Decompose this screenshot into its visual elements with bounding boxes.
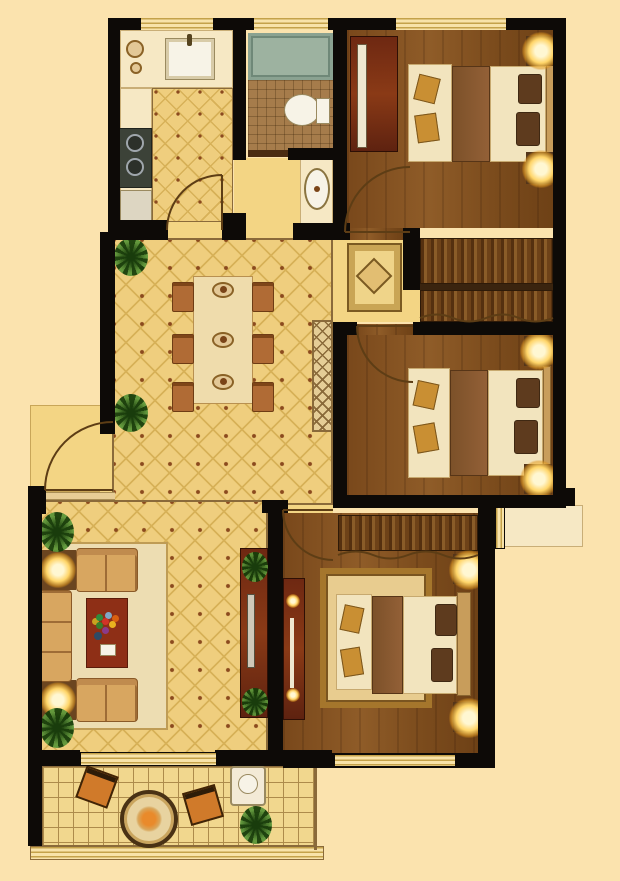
toilet-bowl bbox=[284, 94, 320, 126]
wall-niche-bottom bbox=[293, 223, 350, 240]
entry-threshold-step bbox=[45, 492, 115, 500]
kitchen-base-cabinet bbox=[120, 190, 152, 221]
coffee-table-tray bbox=[100, 644, 116, 656]
wall-living-bottom-left bbox=[28, 750, 80, 766]
balcony-right-edge bbox=[314, 766, 317, 850]
bathtub bbox=[248, 33, 333, 80]
toilet-tank bbox=[316, 98, 330, 124]
bedroom1-bed-blanket bbox=[452, 66, 490, 162]
master-south-window bbox=[335, 755, 455, 766]
master-dresser-knob-2 bbox=[286, 688, 300, 702]
dining-chair-right-2 bbox=[252, 334, 274, 364]
bedroom2-bed-blanket bbox=[450, 370, 488, 476]
dining-plant-top bbox=[114, 238, 148, 276]
living-lamp-top bbox=[40, 552, 76, 588]
flower-bouquet bbox=[102, 618, 109, 625]
wall-living-master-divider bbox=[268, 505, 283, 763]
wall-kitchen-bottom-left bbox=[108, 220, 168, 240]
wall-closet-left-chunk bbox=[403, 228, 420, 290]
balcony-utility-basin bbox=[238, 774, 258, 794]
balcony-sliding-door bbox=[80, 752, 217, 766]
wall-living-bottom-right bbox=[215, 750, 332, 766]
basin-drain bbox=[314, 186, 320, 192]
bedroom2-door-threshold bbox=[357, 324, 413, 335]
master-dresser-knob-1 bbox=[286, 594, 300, 608]
wall-dining-bedroom2-divider bbox=[333, 322, 347, 508]
stove-burner-top bbox=[126, 134, 144, 152]
bedroom1-door-threshold bbox=[347, 228, 403, 240]
bedroom1-wardrobe-slat bbox=[357, 44, 367, 148]
wall-left-outer bbox=[28, 500, 42, 846]
master-pillow-2 bbox=[431, 648, 453, 682]
bedroom2-bench-clothes-2 bbox=[413, 422, 440, 453]
master-wardrobe-strip bbox=[338, 515, 478, 551]
closet-strip-bedroom1 bbox=[420, 238, 553, 284]
master-east-window bbox=[495, 505, 505, 549]
hallway-display-cabinet bbox=[312, 320, 333, 432]
coffee-table-item bbox=[94, 632, 102, 640]
master-bench-clothes-2 bbox=[340, 647, 364, 678]
master-east-window-sill bbox=[495, 505, 583, 547]
tv bbox=[247, 594, 255, 668]
bedroom1-pillow-2 bbox=[516, 112, 540, 146]
wall-master-right bbox=[478, 508, 495, 768]
kitchen-window bbox=[140, 18, 214, 30]
living-plant-top bbox=[40, 512, 74, 552]
bathroom-window bbox=[253, 18, 329, 30]
balcony-table-flower bbox=[136, 806, 162, 832]
stove-burner-bottom bbox=[126, 158, 144, 176]
wall-bath-bottom-chunk bbox=[288, 148, 333, 160]
wall-bedroom2-bottom bbox=[333, 495, 566, 508]
dining-chair-left-3 bbox=[172, 382, 194, 412]
loveseat-top bbox=[76, 548, 138, 592]
wall-kitchen-bottom-right bbox=[222, 213, 246, 240]
wall-kitchen-left bbox=[108, 18, 120, 240]
loveseat-bottom bbox=[76, 678, 138, 722]
wall-bath-bedroom1-divider bbox=[333, 18, 347, 240]
dining-chair-left-1 bbox=[172, 282, 194, 312]
wall-kitchen-bath-divider bbox=[233, 18, 246, 160]
dining-chair-right-3 bbox=[252, 382, 274, 412]
tv-cabinet-plant-bottom bbox=[242, 688, 268, 716]
balcony-railing bbox=[30, 846, 324, 860]
wall-dining-left bbox=[100, 232, 115, 434]
kitchen-faucet bbox=[187, 34, 192, 46]
bedroom2-pillow-2 bbox=[514, 420, 538, 454]
bedroom1-pillow-1 bbox=[518, 74, 542, 104]
living-plant-bottom bbox=[40, 708, 74, 748]
dining-chair-right-1 bbox=[252, 282, 274, 312]
bedroom1-bench-clothes-2 bbox=[414, 113, 440, 144]
closet-strip-bedroom2 bbox=[420, 290, 553, 322]
master-headboard bbox=[457, 592, 471, 696]
floor-plan bbox=[0, 0, 620, 881]
master-pillow-1 bbox=[435, 604, 457, 636]
dining-plant-bottom bbox=[114, 394, 148, 432]
kitchen-bowl-large bbox=[126, 40, 144, 58]
bedroom1-window bbox=[395, 18, 507, 30]
wall-bedroom2-top-right bbox=[413, 322, 553, 335]
place-setting-2-food bbox=[220, 336, 227, 343]
bathroom-sliding-door bbox=[248, 150, 288, 157]
kitchen-floor bbox=[152, 88, 233, 222]
tv-cabinet-plant-top bbox=[242, 552, 268, 582]
dining-chair-left-2 bbox=[172, 334, 194, 364]
kitchen-bowl-small bbox=[130, 62, 142, 74]
coffee-table bbox=[86, 598, 128, 668]
wall-right-outer bbox=[553, 18, 566, 505]
place-setting-1-food bbox=[220, 286, 227, 293]
master-bed-blanket bbox=[372, 596, 403, 694]
bedroom2-pillow-1 bbox=[516, 378, 540, 408]
balcony-plant bbox=[240, 806, 272, 844]
place-setting-3-food bbox=[220, 378, 227, 385]
master-dresser-slat bbox=[290, 618, 294, 688]
